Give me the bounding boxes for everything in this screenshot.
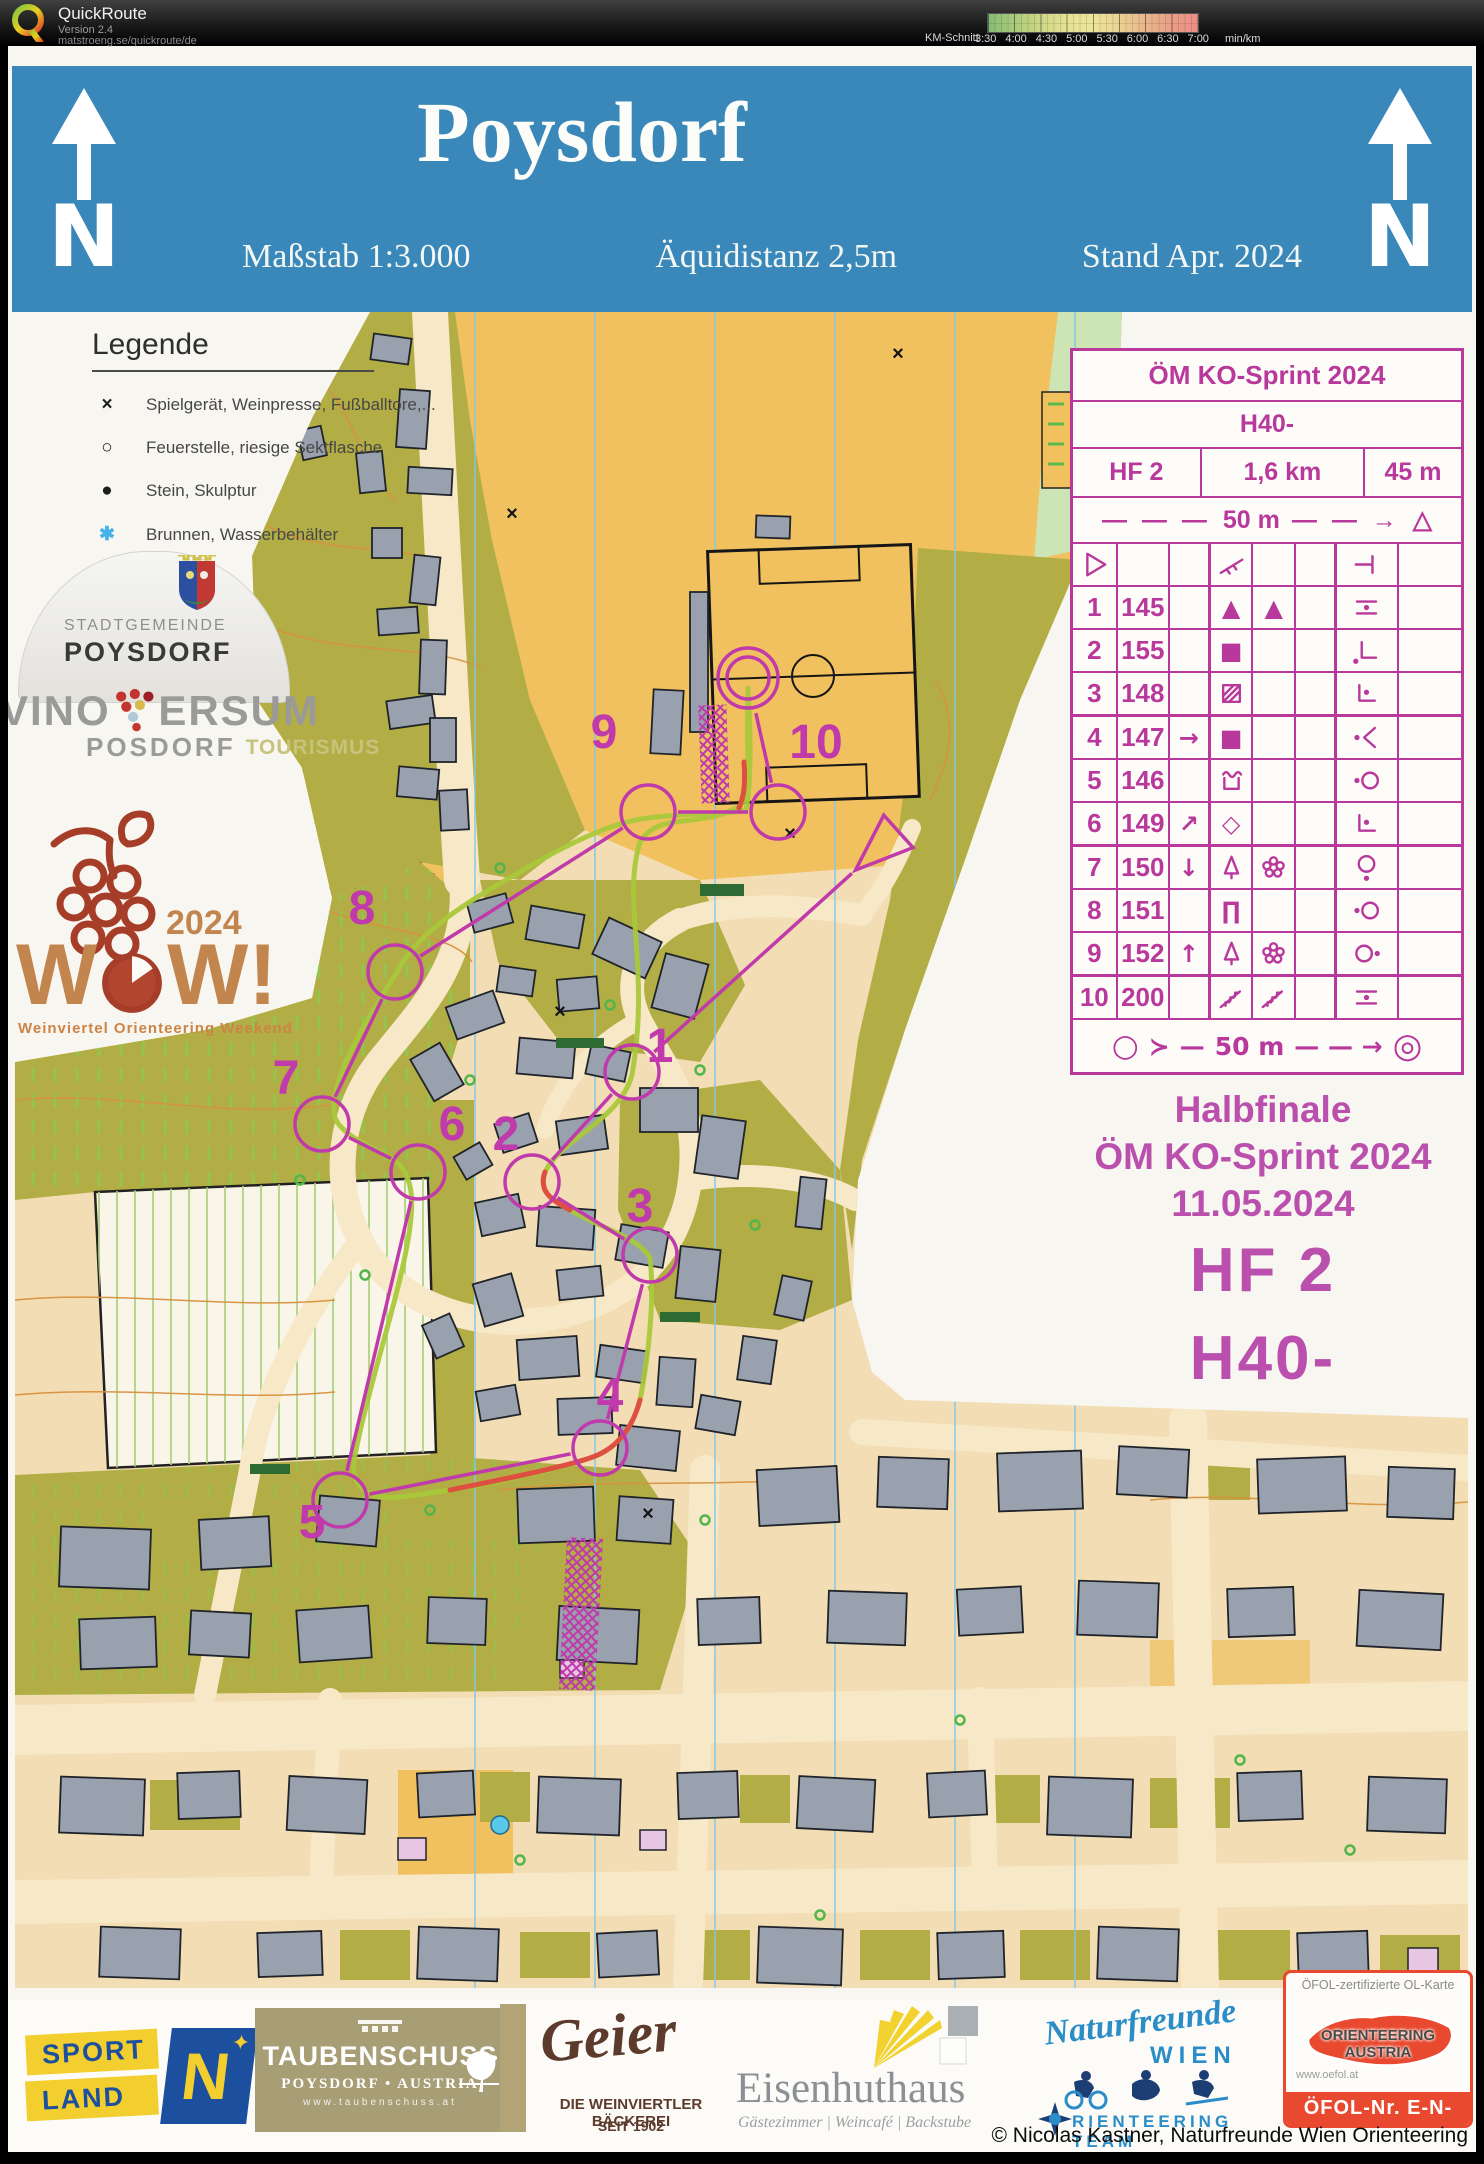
card-control-row: 2155■ (1073, 630, 1461, 673)
card-cell (1253, 760, 1296, 801)
legend-item: ✱Brunnen, Wasserbehälter (92, 523, 522, 546)
control-description-card: ÖM KO-Sprint 2024 H40- HF 2 1,6 km 45 m … (1070, 348, 1464, 1075)
card-cell (1337, 587, 1399, 628)
map-subtitles: Maßstab 1:3.000 Äquidistanz 2,5m Stand A… (242, 238, 1302, 276)
card-cell (1296, 803, 1337, 844)
card-control-row: 8151∏ (1073, 890, 1461, 933)
card-cell: 2 (1073, 630, 1118, 671)
legend-symbol: ● (92, 480, 122, 502)
card-cell: 145 (1118, 587, 1170, 628)
card-cell (1399, 933, 1461, 974)
card-cell (1211, 933, 1254, 974)
pace-gradient-bar (987, 13, 1199, 33)
app-title: QuickRoute (58, 4, 147, 24)
card-cell (1253, 544, 1296, 585)
dove-icon (457, 2034, 501, 2104)
card-cell (1399, 847, 1461, 888)
card-cell: 6 (1073, 803, 1118, 844)
card-cell: ■ (1211, 630, 1254, 671)
wow-subtitle: Weinviertel Orienteering Weekend (18, 1020, 293, 1037)
control-number: 2 (493, 1108, 520, 1161)
card-heat: HF 2 (1073, 449, 1202, 496)
card-cell: ↑ (1170, 933, 1211, 974)
card-cell: → (1170, 717, 1211, 758)
card-cell (1253, 847, 1296, 888)
card-event-title: ÖM KO-Sprint 2024 (1073, 351, 1461, 402)
card-cell (1296, 933, 1337, 974)
card-cell (1296, 630, 1337, 671)
card-cell (1073, 544, 1118, 585)
pace-tick: 5:00 (1066, 33, 1087, 45)
card-distance-to-start: — — — 50 m — — → △ (1073, 498, 1461, 544)
card-length: 1,6 km (1202, 449, 1365, 496)
card-cell (1296, 847, 1337, 888)
map-equidistance: Äquidistanz 2,5m (655, 238, 897, 276)
sportland-logo: SPORT LAND N ✦ (26, 2028, 252, 2128)
card-cell: 3 (1073, 673, 1118, 714)
legend-item: ●Stein, Skulptur (92, 480, 522, 502)
card-cell (1211, 760, 1254, 801)
card-cell: 200 (1118, 977, 1170, 1018)
control-number: 9 (591, 706, 618, 759)
card-cell (1399, 673, 1461, 714)
svg-text:×: × (554, 1001, 566, 1023)
map-status: Stand Apr. 2024 (1082, 238, 1302, 276)
card-cell (1253, 673, 1296, 714)
card-cell: 9 (1073, 933, 1118, 974)
card-cell (1211, 847, 1254, 888)
card-cell (1296, 587, 1337, 628)
sponsor-band: SPORT LAND N ✦ TAUBENSCHUSS POYSDORF • A… (8, 2000, 1476, 2152)
legend-symbol: × (92, 394, 122, 416)
card-control-row: 6149↗◇ (1073, 803, 1461, 847)
card-class: H40- (1073, 402, 1461, 449)
oefol-badge: ÖFOL-zertifizierte OL-Karte ORIENTEERING… (1283, 1970, 1473, 2128)
card-cell (1296, 717, 1337, 758)
card-cell: 8 (1073, 890, 1118, 931)
card-cell: ▲ (1211, 587, 1254, 628)
card-cell: 148 (1118, 673, 1170, 714)
vino-word3: PO (86, 732, 130, 763)
svg-text:N: N (48, 187, 120, 274)
card-cell (1399, 717, 1461, 758)
pace-tick: 5:30 (1096, 33, 1117, 45)
card-cell (1399, 630, 1461, 671)
card-cell (1211, 977, 1254, 1018)
card-cell (1253, 977, 1296, 1018)
card-cell (1253, 630, 1296, 671)
card-cell (1170, 977, 1211, 1018)
card-cell (1337, 977, 1399, 1018)
pace-scale-unit: min/km (1225, 33, 1260, 45)
card-cell (1337, 630, 1399, 671)
legend-label: Stein, Skulptur (146, 481, 257, 501)
legend-symbol: ✱ (92, 523, 122, 546)
building-icon (354, 2018, 406, 2034)
card-cell (1253, 803, 1296, 844)
card-cell (1170, 630, 1211, 671)
vino-word1: VINO (8, 687, 111, 735)
pace-tick: 3:30 (975, 33, 996, 45)
card-cell (1337, 544, 1399, 585)
control-number: 4 (597, 1370, 624, 1423)
card-cell (1170, 760, 1211, 801)
card-cell (1337, 890, 1399, 931)
card-cell (1211, 673, 1254, 714)
card-cell: 150 (1118, 847, 1170, 888)
card-cell (1296, 977, 1337, 1018)
card-cell (1337, 760, 1399, 801)
card-cell (1253, 933, 1296, 974)
legend-symbol: ○ (92, 437, 122, 459)
card-cell: ↗ (1170, 803, 1211, 844)
card-cell (1337, 847, 1399, 888)
card-cell (1118, 544, 1170, 585)
card-control-row: 7150↓ (1073, 847, 1461, 890)
card-distance-to-finish: ○ ≻ — 50 m — — → ◎ (1073, 1020, 1461, 1072)
card-cell (1399, 760, 1461, 801)
grape-o-icon (99, 950, 165, 1016)
card-cell (1337, 717, 1399, 758)
map-scale: Maßstab 1:3.000 (242, 238, 471, 276)
card-climb: 45 m (1365, 449, 1461, 496)
vinoversum-logo: VINO ERSUM PO SDORF TOURISMUS (8, 686, 320, 763)
naturfreunde-logo: Naturfreunde WIEN RIENTEERING TEAM (1038, 1994, 1276, 2144)
north-arrow-icon: N (40, 86, 128, 274)
control-number: 6 (439, 1098, 466, 1151)
card-cell (1296, 673, 1337, 714)
card-cell: 7 (1073, 847, 1118, 888)
legend-title: Legende (92, 328, 522, 362)
vino-word4: SDORF (130, 732, 236, 763)
event-date: 11.05.2024 (1056, 1180, 1470, 1227)
card-cell: ∏ (1211, 890, 1254, 931)
north-arrow-icon: N (1356, 86, 1444, 274)
map-title-band: N N Poysdorf Maßstab 1:3.000 Äquidistanz… (12, 66, 1472, 312)
card-cell (1399, 890, 1461, 931)
card-cell: ↓ (1170, 847, 1211, 888)
card-cell: 151 (1118, 890, 1170, 931)
control-number: 5 (299, 1496, 326, 1549)
quickroute-logo-icon (8, 2, 50, 44)
svg-text:×: × (892, 343, 904, 365)
control-number: 7 (273, 1052, 300, 1105)
control-number: 3 (627, 1180, 654, 1233)
geier-logo: Geier DIE WEINVIERTLER BÄCKEREI SEIT 190… (500, 2000, 740, 2152)
card-control-row: 4147→■ (1073, 717, 1461, 760)
card-cell (1170, 587, 1211, 628)
grape-v-icon (111, 686, 159, 736)
card-cell: 155 (1118, 630, 1170, 671)
map-paper: ××× ××× 12345678910 N (8, 46, 1476, 2152)
card-control-rows: 1145▲▲2155■31484147→■51466149↗◇7150↓8151… (1073, 544, 1461, 1020)
card-cell: 147 (1118, 717, 1170, 758)
card-control-row: 3148 (1073, 673, 1461, 717)
card-cell: 10 (1073, 977, 1118, 1018)
card-cell (1253, 717, 1296, 758)
card-cell: 146 (1118, 760, 1170, 801)
svg-text:×: × (642, 1503, 654, 1525)
niederoesterreich-n-icon: N ✦ (160, 2028, 258, 2124)
card-cell (1170, 673, 1211, 714)
legend-item: ○Feuerstelle, riesige Sektflasche (92, 437, 522, 459)
card-control-row: 10200 (1073, 977, 1461, 1020)
card-cell: 152 (1118, 933, 1170, 974)
card-cell (1337, 803, 1399, 844)
pace-scale-ticks: 3:304:004:305:005:306:006:307:00 (975, 33, 1209, 45)
vino-word2: ERSUM (158, 687, 320, 735)
card-cell: 1 (1073, 587, 1118, 628)
card-cell (1399, 977, 1461, 1018)
card-control-row: 5146 (1073, 760, 1461, 803)
stadtgemeinde-line1: STADTGEMEINDE (64, 617, 227, 635)
sport-pictograms-icon (1064, 2068, 1234, 2110)
fan-icon (864, 2002, 984, 2072)
pace-tick: 6:00 (1127, 33, 1148, 45)
poysdorf-coat-of-arms-icon (176, 555, 218, 611)
pace-tick: 4:00 (1005, 33, 1026, 45)
taubenschuss-logo: TAUBENSCHUSS POYSDORF • AUSTRIA www.taub… (255, 2008, 505, 2132)
pace-tick: 6:30 (1157, 33, 1178, 45)
vino-word5: TOURISMUS (246, 736, 381, 760)
card-cell: ■ (1211, 717, 1254, 758)
control-number: 8 (349, 882, 376, 935)
legend-label: Spielgerät, Weinpresse, Fußballtore,... (146, 395, 436, 415)
card-cell (1399, 544, 1461, 585)
event-name: ÖM KO-Sprint 2024 (1056, 1133, 1470, 1180)
legend-label: Feuerstelle, riesige Sektflasche (146, 438, 382, 458)
event-class: H40- (1056, 1315, 1470, 1403)
svg-text:N: N (1364, 187, 1436, 274)
card-cell (1337, 933, 1399, 974)
copyright-text: © Nicolas Kastner, Naturfreunde Wien Ori… (991, 2124, 1468, 2148)
card-cell (1337, 673, 1399, 714)
card-cell (1399, 587, 1461, 628)
card-cell (1211, 544, 1254, 585)
event-round: Halbfinale (1056, 1086, 1470, 1133)
legend: Legende ×Spielgerät, Weinpresse, Fußball… (92, 328, 522, 567)
card-cell (1170, 544, 1211, 585)
stadtgemeinde-line2: POYSDORF (64, 637, 232, 668)
card-cell (1296, 544, 1337, 585)
pace-tick: 7:00 (1188, 33, 1209, 45)
titlebar[interactable]: QuickRoute Version 2.4 matstroeng.se/qui… (0, 0, 1484, 46)
quickroute-window: { "app": {"name": "QuickRoute", "version… (0, 0, 1484, 2164)
pace-scale-label: KM-Schnitt (925, 32, 979, 44)
event-heat: HF 2 (1056, 1227, 1470, 1315)
app-url: matstroeng.se/quickroute/de (58, 35, 197, 47)
card-start-row (1073, 544, 1461, 587)
control-number: 10 (789, 716, 842, 769)
card-cell: ◇ (1211, 803, 1254, 844)
legend-label: Brunnen, Wasserbehälter (146, 525, 338, 545)
card-control-row: 1145▲▲ (1073, 587, 1461, 630)
card-cell (1399, 803, 1461, 844)
card-cell: 149 (1118, 803, 1170, 844)
map-title: Poysdorf (132, 82, 1032, 182)
control-number: 1 (647, 1020, 674, 1073)
legend-item: ×Spielgerät, Weinpresse, Fußballtore,... (92, 394, 522, 416)
card-cell (1170, 890, 1211, 931)
wow-logo: 2024 W W ! Weinviertel Orienteering Week… (14, 766, 314, 1056)
card-cell (1253, 890, 1296, 931)
card-cell (1296, 760, 1337, 801)
card-cell: 5 (1073, 760, 1118, 801)
card-cell (1296, 890, 1337, 931)
pace-tick: 4:30 (1036, 33, 1057, 45)
wow-word: W W ! (16, 926, 277, 1025)
card-cell: ▲ (1253, 587, 1296, 628)
event-panel: Halbfinale ÖM KO-Sprint 2024 11.05.2024 … (1056, 1086, 1470, 1403)
card-course-info: HF 2 1,6 km 45 m (1073, 449, 1461, 498)
card-control-row: 9152↑ (1073, 933, 1461, 977)
card-cell: 4 (1073, 717, 1118, 758)
